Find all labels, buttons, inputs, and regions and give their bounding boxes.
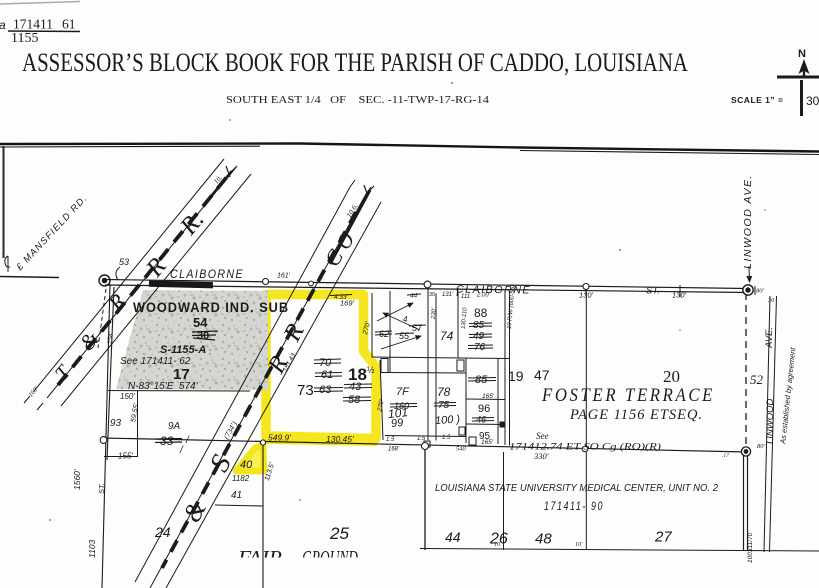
svg-text:78: 78	[437, 385, 451, 399]
svg-text:76: 76	[474, 342, 486, 353]
svg-text:171411- 90: 171411- 90	[544, 501, 604, 513]
svg-text:CLAIBORNE: CLAIBORNE	[170, 269, 244, 281]
svg-text:.17: .17	[722, 453, 729, 459]
svg-text:1182: 1182	[232, 474, 250, 483]
svg-text:&: &	[74, 325, 105, 355]
svg-text:20: 20	[663, 367, 680, 386]
svg-text:43: 43	[349, 381, 362, 393]
svg-text:1155: 1155	[11, 31, 38, 46]
svg-text:46: 46	[476, 415, 486, 425]
svg-text:85: 85	[473, 320, 485, 331]
svg-text:/: /	[185, 435, 190, 446]
svg-text:41: 41	[231, 490, 242, 501]
svg-text:230': 230'	[431, 307, 438, 320]
svg-text:/: /	[179, 445, 184, 456]
svg-text:27: 27	[654, 529, 672, 546]
svg-text:130': 130'	[579, 291, 594, 300]
svg-text:55: 55	[399, 331, 410, 341]
svg-text:33: 33	[160, 434, 174, 448]
svg-text:161': 161'	[277, 273, 291, 280]
svg-text:96: 96	[478, 403, 490, 415]
svg-text:330': 330'	[533, 451, 549, 461]
svg-text:See: See	[536, 431, 549, 441]
svg-text:30: 30	[806, 94, 819, 108]
svg-text:59.55': 59.55'	[130, 402, 140, 422]
svg-text:19: 19	[508, 368, 524, 384]
svg-text:1.5: 1.5	[442, 435, 451, 441]
svg-text:SCALE 1” =: SCALE 1” =	[731, 95, 783, 105]
svg-text:40: 40	[240, 459, 253, 471]
svg-text:LOUISIANA STATE UNIVERSITY MED: LOUISIANA STATE UNIVERSITY MEDICAL CENTE…	[435, 482, 718, 494]
svg-text:WOODWARD IND. SUB: WOODWARD IND. SUB	[133, 300, 289, 315]
svg-text:61: 61	[321, 369, 333, 381]
svg-text:£ MANSFIELD RD.: £ MANSFIELD RD.	[14, 193, 90, 274]
svg-text:171412.74 ET SO Cg (RO)(R): 171412.74 ET SO Cg (RO)(R)	[509, 442, 661, 453]
svg-text:10': 10'	[575, 542, 583, 548]
svg-text:52: 52	[750, 372, 764, 387]
svg-text:80': 80'	[756, 288, 765, 295]
svg-text:FAIR: FAIR	[237, 546, 282, 570]
svg-text:61: 61	[62, 17, 76, 32]
svg-text:131': 131'	[442, 292, 454, 298]
svg-text:165': 165'	[481, 439, 494, 446]
svg-text:ASSESSOR’S BLOCK BOOK FOR THE: ASSESSOR’S BLOCK BOOK FOR THE PARISH OF …	[22, 48, 688, 77]
svg-text:T: T	[51, 360, 76, 384]
svg-text:24: 24	[154, 524, 171, 540]
svg-text:93: 93	[110, 418, 122, 429]
svg-text:As established by agreement: As established by agreement	[778, 346, 797, 445]
svg-text:S: S	[204, 450, 238, 477]
svg-text:7F: 7F	[396, 386, 410, 398]
svg-text:130': 130'	[672, 291, 687, 300]
svg-text:270': 270'	[376, 398, 386, 413]
svg-text:54: 54	[193, 315, 208, 330]
svg-text:130.45': 130.45'	[326, 434, 354, 444]
svg-text:a: a	[0, 18, 6, 32]
svg-text:44: 44	[445, 529, 461, 545]
svg-text:ST.: ST.	[646, 286, 660, 297]
svg-text:155': 155'	[118, 452, 133, 461]
svg-text:85: 85	[475, 374, 488, 386]
svg-text:ST.: ST.	[97, 483, 106, 494]
svg-text:25: 25	[329, 524, 349, 543]
svg-text:R: R	[102, 288, 131, 316]
svg-text:LINWOOD AVE.: LINWOOD AVE.	[742, 174, 754, 269]
svg-text:73: 73	[297, 382, 314, 399]
svg-text:63: 63	[319, 384, 332, 396]
svg-text:130-110: 130-110	[461, 307, 469, 330]
svg-text:S-1155-A: S-1155-A	[160, 344, 206, 356]
svg-text:169': 169'	[340, 299, 355, 308]
svg-text:44: 44	[410, 293, 418, 300]
svg-text:47: 47	[534, 367, 550, 383]
svg-text:49: 49	[473, 331, 485, 342]
svg-text:165': 165'	[482, 393, 495, 400]
svg-text:R: R	[278, 319, 309, 346]
svg-text:SOUTH EAST 1/4 OF SEC. -1: SOUTH EAST 1/4 OF SEC. -11-TWP-17-RG-14	[226, 95, 490, 106]
svg-text:53: 53	[119, 257, 129, 267]
svg-text:100 ): 100 )	[435, 413, 461, 427]
svg-text:9A: 9A	[168, 421, 181, 432]
svg-text:171411: 171411	[13, 17, 53, 32]
svg-text:111: 111	[461, 294, 470, 300]
svg-text:549.9': 549.9'	[268, 433, 291, 443]
svg-text:2.00': 2.00'	[476, 293, 491, 299]
svg-text:99: 99	[390, 417, 403, 430]
svg-text:150': 150'	[120, 392, 135, 401]
svg-text:4: 4	[403, 315, 408, 324]
svg-text:168': 168'	[388, 447, 400, 453]
svg-text:26: 26	[489, 531, 508, 548]
svg-text:½: ½	[367, 365, 375, 375]
svg-text:&: &	[177, 495, 212, 527]
svg-text:PAGE 1156 ETSEQ.: PAGE 1156 ETSEQ.	[569, 407, 703, 423]
svg-text:GROUND: GROUND	[302, 546, 358, 570]
svg-text:540: 540	[456, 446, 467, 453]
svg-text:88: 88	[474, 306, 488, 320]
svg-text:1.5: 1.5	[386, 437, 395, 443]
svg-text:74: 74	[440, 329, 454, 343]
svg-text:FOSTER TERRACE: FOSTER TERRACE	[541, 385, 715, 406]
svg-text:AVE.: AVE.	[764, 327, 775, 349]
svg-text:57: 57	[412, 323, 423, 333]
svg-text:LINWOOD: LINWOOD	[765, 398, 776, 444]
svg-text:48: 48	[535, 531, 552, 548]
svg-text:258': 258'	[106, 331, 115, 344]
svg-text:100311/70: 100311/70	[747, 532, 754, 563]
svg-text:58: 58	[348, 394, 361, 406]
svg-text:30: 30	[429, 292, 435, 298]
svg-text:1560': 1560'	[72, 469, 82, 490]
svg-text:1103: 1103	[87, 539, 97, 558]
svg-text:160': 160'	[27, 385, 40, 399]
svg-text:1.5: 1.5	[417, 436, 426, 442]
svg-text:N: N	[798, 48, 806, 60]
svg-text:30: 30	[767, 298, 774, 304]
svg-text:N·83°15'E 574': N·83°15'E 574'	[128, 381, 199, 392]
